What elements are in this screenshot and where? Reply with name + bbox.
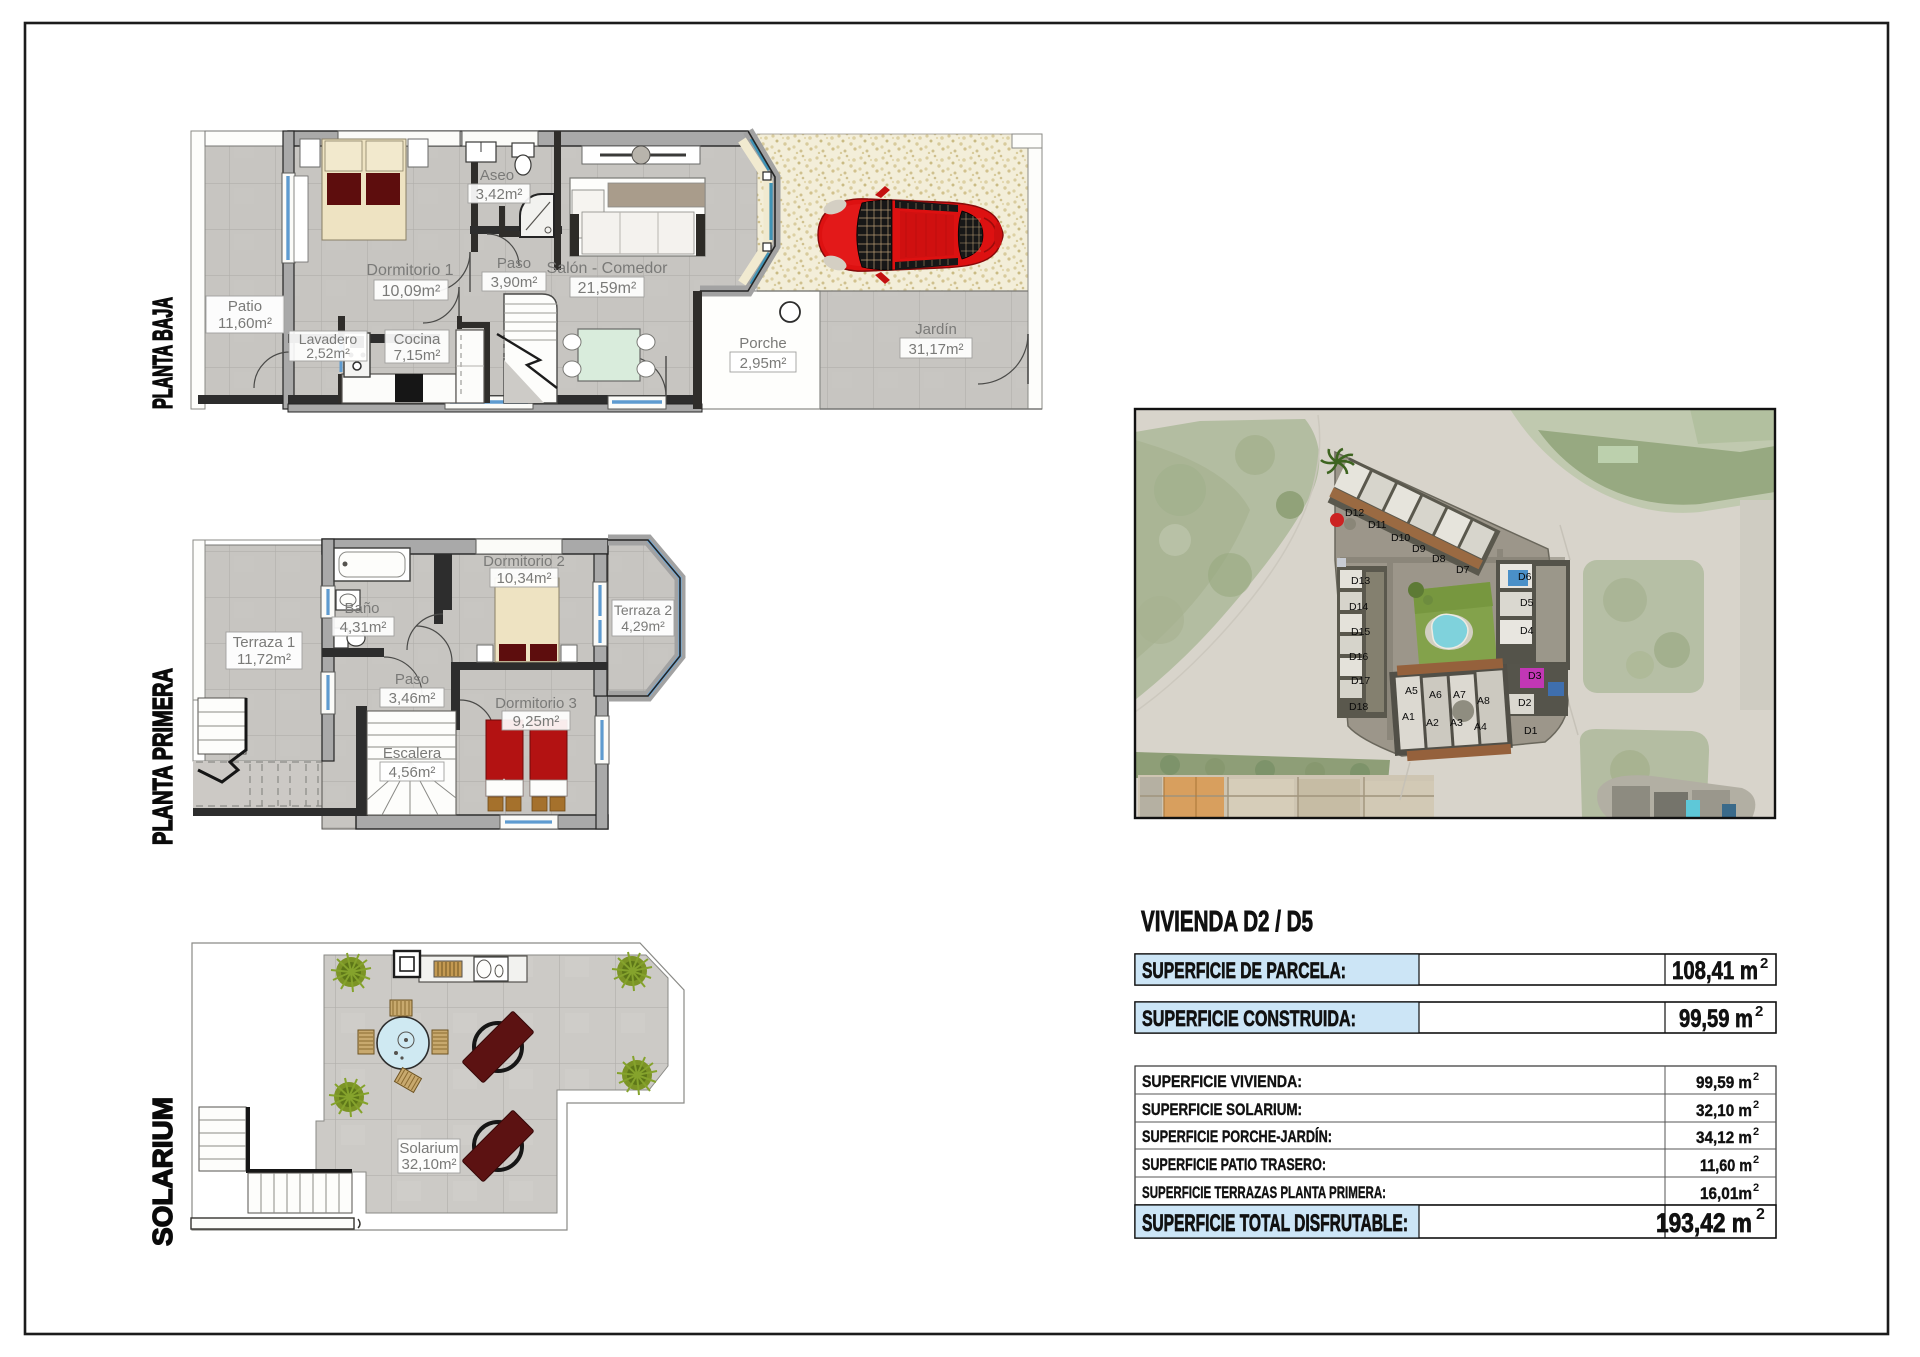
svg-text:2: 2 xyxy=(1753,1099,1759,1111)
svg-text:SUPERFICIE DE PARCELA:: SUPERFICIE DE PARCELA: xyxy=(1142,958,1346,983)
svg-text:D17: D17 xyxy=(1351,675,1370,687)
svg-text:SOLARIUM: SOLARIUM xyxy=(147,1097,178,1246)
svg-text:PLANTA PRIMERA: PLANTA PRIMERA xyxy=(147,668,178,845)
svg-text:108,41 m: 108,41 m xyxy=(1672,957,1758,985)
svg-text:Jardín: Jardín xyxy=(915,321,957,338)
svg-text:D9: D9 xyxy=(1412,543,1426,555)
svg-text:SUPERFICIE SOLARIUM:: SUPERFICIE SOLARIUM: xyxy=(1142,1100,1302,1119)
svg-text:32,10m²: 32,10m² xyxy=(401,1156,456,1173)
svg-text:Dormitorio 3: Dormitorio 3 xyxy=(495,695,577,712)
svg-text:2: 2 xyxy=(1753,1154,1759,1166)
svg-text:Solarium: Solarium xyxy=(399,1140,458,1157)
svg-text:SUPERFICIE CONSTRUIDA:: SUPERFICIE CONSTRUIDA: xyxy=(1142,1006,1356,1031)
svg-text:16,01m: 16,01m xyxy=(1700,1184,1752,1203)
svg-text:2: 2 xyxy=(1755,1003,1763,1020)
svg-text:3,42m²: 3,42m² xyxy=(476,186,523,203)
svg-text:Terraza 1: Terraza 1 xyxy=(233,634,296,651)
svg-text:D11: D11 xyxy=(1368,519,1387,531)
svg-text:D6: D6 xyxy=(1518,571,1532,583)
svg-text:31,17m²: 31,17m² xyxy=(908,341,963,358)
svg-text:21,59m²: 21,59m² xyxy=(578,280,637,297)
svg-text:A8: A8 xyxy=(1477,695,1490,707)
svg-text:D1: D1 xyxy=(1524,725,1538,737)
svg-text:D8: D8 xyxy=(1432,553,1446,565)
svg-text:11,60 m: 11,60 m xyxy=(1700,1156,1752,1175)
svg-text:2: 2 xyxy=(1756,1206,1765,1223)
svg-text:SUPERFICIE PORCHE-JARDÍN:: SUPERFICIE PORCHE-JARDÍN: xyxy=(1142,1127,1332,1146)
svg-text:2,52m²: 2,52m² xyxy=(306,345,350,361)
svg-text:Patio: Patio xyxy=(228,298,262,315)
svg-text:VIVIENDA D2 / D5: VIVIENDA D2 / D5 xyxy=(1141,906,1313,938)
svg-text:D2: D2 xyxy=(1518,697,1532,709)
svg-text:A3: A3 xyxy=(1450,717,1463,729)
svg-text:D10: D10 xyxy=(1391,532,1410,544)
svg-text:11,72m²: 11,72m² xyxy=(237,651,291,668)
svg-text:Terraza 2: Terraza 2 xyxy=(614,602,673,618)
svg-text:Cocina: Cocina xyxy=(394,331,441,348)
svg-text:D16: D16 xyxy=(1349,651,1368,663)
svg-text:Dormitorio 2: Dormitorio 2 xyxy=(483,553,565,570)
svg-text:99,59 m: 99,59 m xyxy=(1679,1005,1753,1033)
svg-text:Aseo: Aseo xyxy=(480,167,514,184)
svg-text:2,95m²: 2,95m² xyxy=(740,355,787,372)
svg-text:2: 2 xyxy=(1753,1071,1759,1083)
svg-text:D7: D7 xyxy=(1456,564,1470,576)
svg-text:4,56m²: 4,56m² xyxy=(389,764,436,781)
svg-text:193,42 m: 193,42 m xyxy=(1656,1208,1752,1238)
svg-text:3,46m²: 3,46m² xyxy=(389,690,436,707)
svg-text:Escalera: Escalera xyxy=(383,745,442,762)
svg-text:2: 2 xyxy=(1753,1182,1759,1194)
svg-text:SUPERFICIE TOTAL DISFRUTABLE:: SUPERFICIE TOTAL DISFRUTABLE: xyxy=(1142,1210,1408,1237)
svg-text:D14: D14 xyxy=(1349,601,1368,613)
svg-text:34,12 m: 34,12 m xyxy=(1696,1128,1752,1147)
svg-text:99,59 m: 99,59 m xyxy=(1696,1073,1752,1092)
svg-text:A1: A1 xyxy=(1402,711,1415,723)
svg-text:SUPERFICIE VIVIENDA:: SUPERFICIE VIVIENDA: xyxy=(1142,1072,1302,1091)
svg-text:A2: A2 xyxy=(1426,717,1439,729)
svg-text:D15: D15 xyxy=(1351,626,1370,638)
svg-text:D12: D12 xyxy=(1345,507,1364,519)
svg-text:A4: A4 xyxy=(1474,721,1487,733)
svg-text:SUPERFICIE TERRAZAS PLANTA PRI: SUPERFICIE TERRAZAS PLANTA PRIMERA: xyxy=(1142,1183,1386,1202)
svg-text:4,29m²: 4,29m² xyxy=(621,618,665,634)
svg-text:Porche: Porche xyxy=(739,335,787,352)
svg-text:A7: A7 xyxy=(1453,689,1466,701)
svg-text:11,60m²: 11,60m² xyxy=(218,315,272,332)
svg-text:4,31m²: 4,31m² xyxy=(340,619,387,636)
svg-text:2: 2 xyxy=(1760,955,1768,972)
svg-text:Baño: Baño xyxy=(344,600,379,617)
svg-text:10,34m²: 10,34m² xyxy=(496,570,551,587)
svg-text:Paso: Paso xyxy=(395,671,429,688)
svg-text:SUPERFICIE PATIO TRASERO:: SUPERFICIE PATIO TRASERO: xyxy=(1142,1155,1326,1174)
svg-text:D13: D13 xyxy=(1351,575,1370,587)
svg-text:9,25m²: 9,25m² xyxy=(513,713,560,730)
svg-text:D4: D4 xyxy=(1520,625,1534,637)
svg-text:2: 2 xyxy=(1753,1126,1759,1138)
svg-text:PLANTA BAJA: PLANTA BAJA xyxy=(147,297,178,409)
svg-text:D18: D18 xyxy=(1349,701,1368,713)
svg-text:D5: D5 xyxy=(1520,597,1534,609)
svg-text:D3: D3 xyxy=(1528,670,1542,682)
svg-text:A5: A5 xyxy=(1405,685,1418,697)
svg-text:10,09m²: 10,09m² xyxy=(382,283,441,300)
svg-text:32,10 m: 32,10 m xyxy=(1696,1101,1752,1120)
svg-text:Paso: Paso xyxy=(497,255,531,272)
svg-text:3,90m²: 3,90m² xyxy=(491,274,538,291)
svg-text:Salón - Comedor: Salón - Comedor xyxy=(547,260,669,277)
svg-text:7,15m²: 7,15m² xyxy=(394,347,441,364)
svg-text:A6: A6 xyxy=(1429,689,1442,701)
svg-text:Dormitorio 1: Dormitorio 1 xyxy=(366,262,453,279)
